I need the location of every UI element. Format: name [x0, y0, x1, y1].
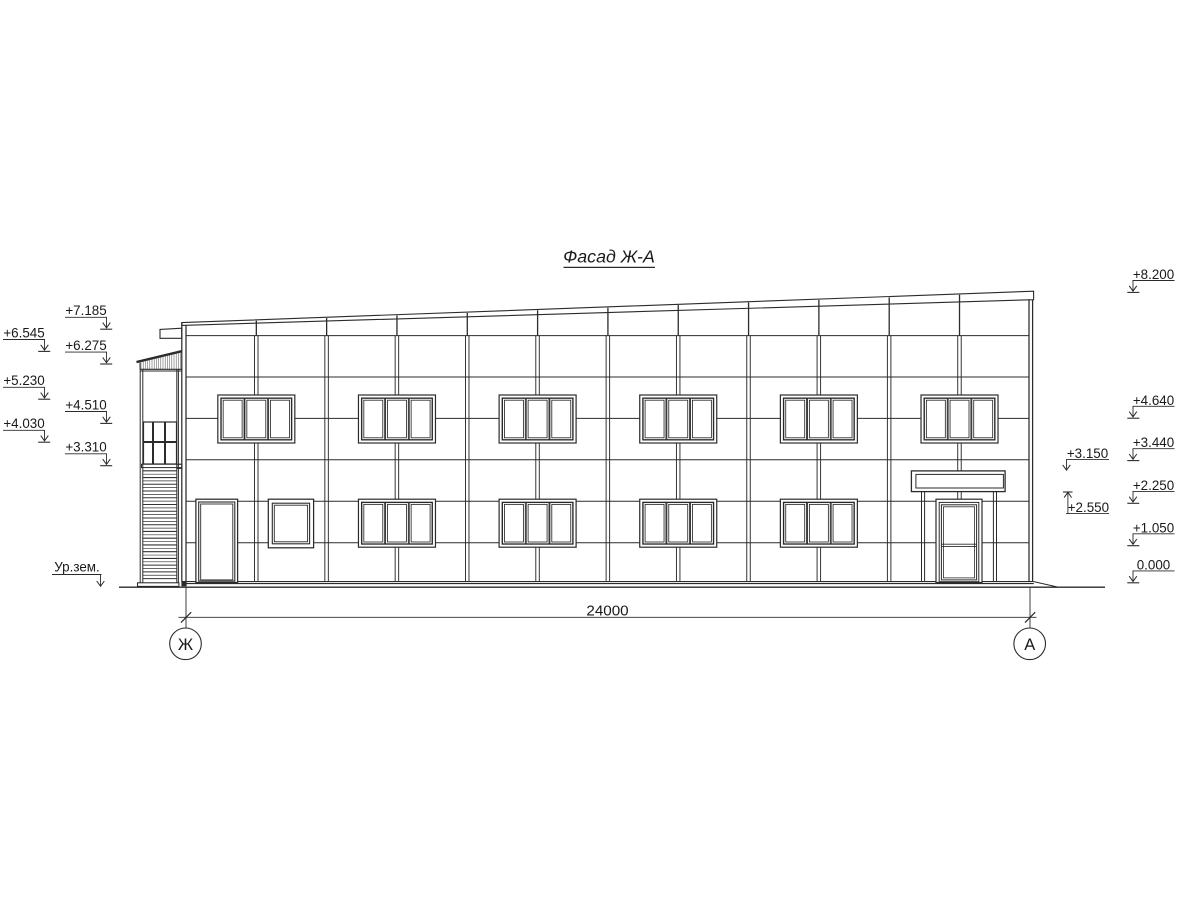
- svg-text:+6.545: +6.545: [3, 325, 44, 340]
- svg-text:+2.550: +2.550: [1068, 500, 1109, 515]
- svg-text:+7.185: +7.185: [65, 303, 106, 318]
- svg-text:+8.200: +8.200: [1133, 267, 1174, 282]
- svg-text:+2.250: +2.250: [1133, 478, 1174, 493]
- svg-text:+4.640: +4.640: [1133, 393, 1174, 408]
- svg-text:+3.150: +3.150: [1067, 446, 1108, 461]
- svg-text:+3.310: +3.310: [65, 440, 106, 455]
- svg-text:Ж: Ж: [178, 636, 194, 654]
- svg-text:0.000: 0.000: [1137, 557, 1171, 572]
- svg-text:Ур.зем.: Ур.зем.: [54, 560, 99, 575]
- svg-text:А: А: [1024, 636, 1035, 654]
- svg-text:24000: 24000: [586, 603, 628, 620]
- svg-text:+6.275: +6.275: [65, 338, 106, 353]
- svg-text:+1.050: +1.050: [1133, 520, 1174, 535]
- svg-text:+5.230: +5.230: [3, 373, 44, 388]
- svg-text:+4.030: +4.030: [3, 416, 44, 431]
- svg-text:Фасад Ж-А: Фасад Ж-А: [563, 247, 655, 267]
- svg-text:+3.440: +3.440: [1133, 435, 1174, 450]
- svg-text:+4.510: +4.510: [65, 397, 106, 412]
